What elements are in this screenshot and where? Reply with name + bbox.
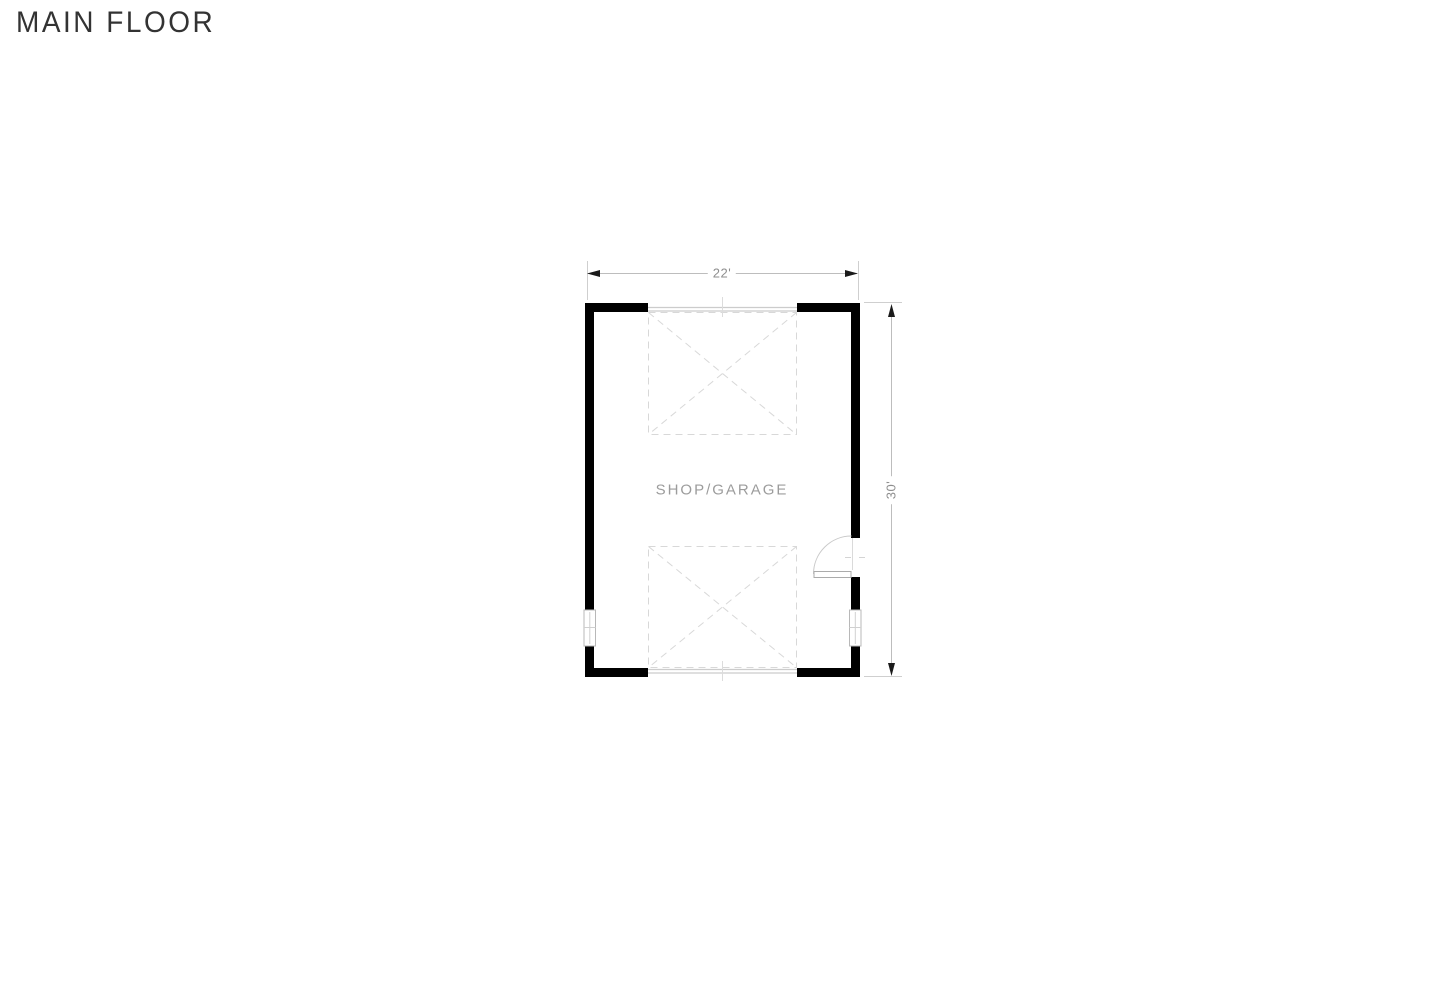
entry-door xyxy=(814,536,866,578)
wall-right-lower xyxy=(851,646,860,677)
arrowhead-right xyxy=(845,270,858,277)
wall-left-upper xyxy=(585,303,594,610)
room-label: SHOP/GARAGE xyxy=(656,482,789,499)
wall-top-left-segment xyxy=(585,303,648,312)
height-dimension-label: 30' xyxy=(884,476,899,504)
window-right xyxy=(850,610,862,646)
overhead-door-outline-top xyxy=(649,313,797,435)
overhead-door-outline-bottom xyxy=(649,547,797,668)
wall-right-upper xyxy=(851,303,860,538)
drawing-sheet: MAIN FLOOR xyxy=(0,0,1445,1000)
door-leaf xyxy=(814,572,851,578)
wall-right-middle xyxy=(851,577,860,610)
door-swing-arc xyxy=(814,536,852,574)
window-left xyxy=(584,610,596,646)
arrowhead-left xyxy=(587,270,600,277)
wall-bottom-left-segment xyxy=(585,668,648,677)
width-dimension-label: 22' xyxy=(708,266,736,281)
wall-left-lower xyxy=(585,646,594,677)
floor-plan-drawing xyxy=(0,0,1445,1000)
arrowhead-up xyxy=(888,304,895,317)
wall-top-right-segment xyxy=(797,303,860,312)
wall-bottom-right-segment xyxy=(797,668,860,677)
arrowhead-down xyxy=(888,663,895,676)
